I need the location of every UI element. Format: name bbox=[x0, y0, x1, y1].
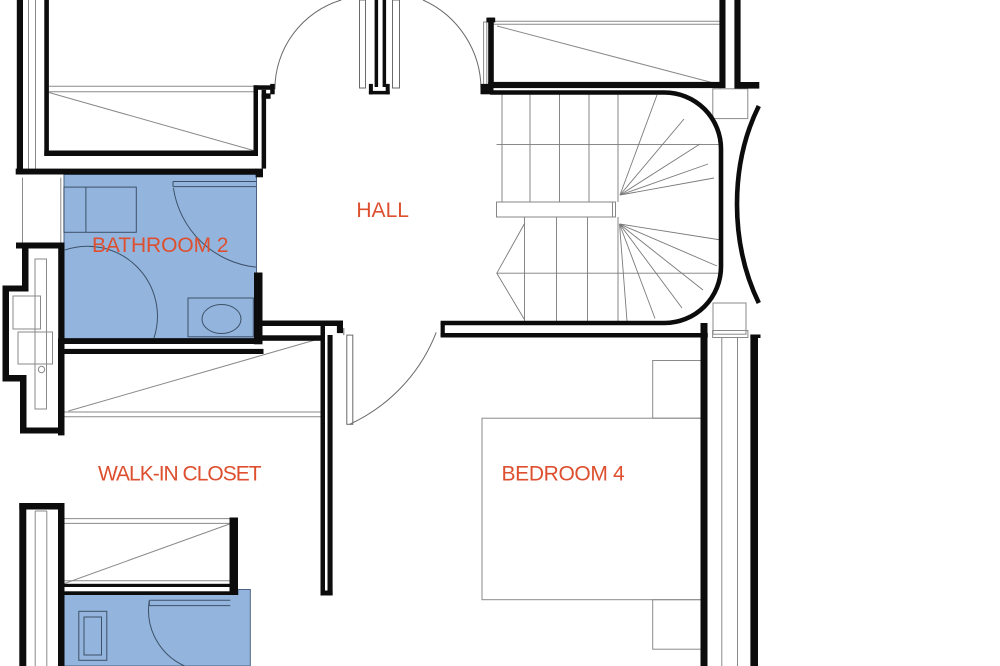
svg-text:WALK-IN CLOSET: WALK-IN CLOSET bbox=[98, 463, 262, 486]
svg-text:HALL: HALL bbox=[356, 199, 409, 222]
svg-text:BEDROOM 4: BEDROOM 4 bbox=[502, 463, 626, 486]
svg-text:BATHROOM 2: BATHROOM 2 bbox=[92, 234, 228, 257]
